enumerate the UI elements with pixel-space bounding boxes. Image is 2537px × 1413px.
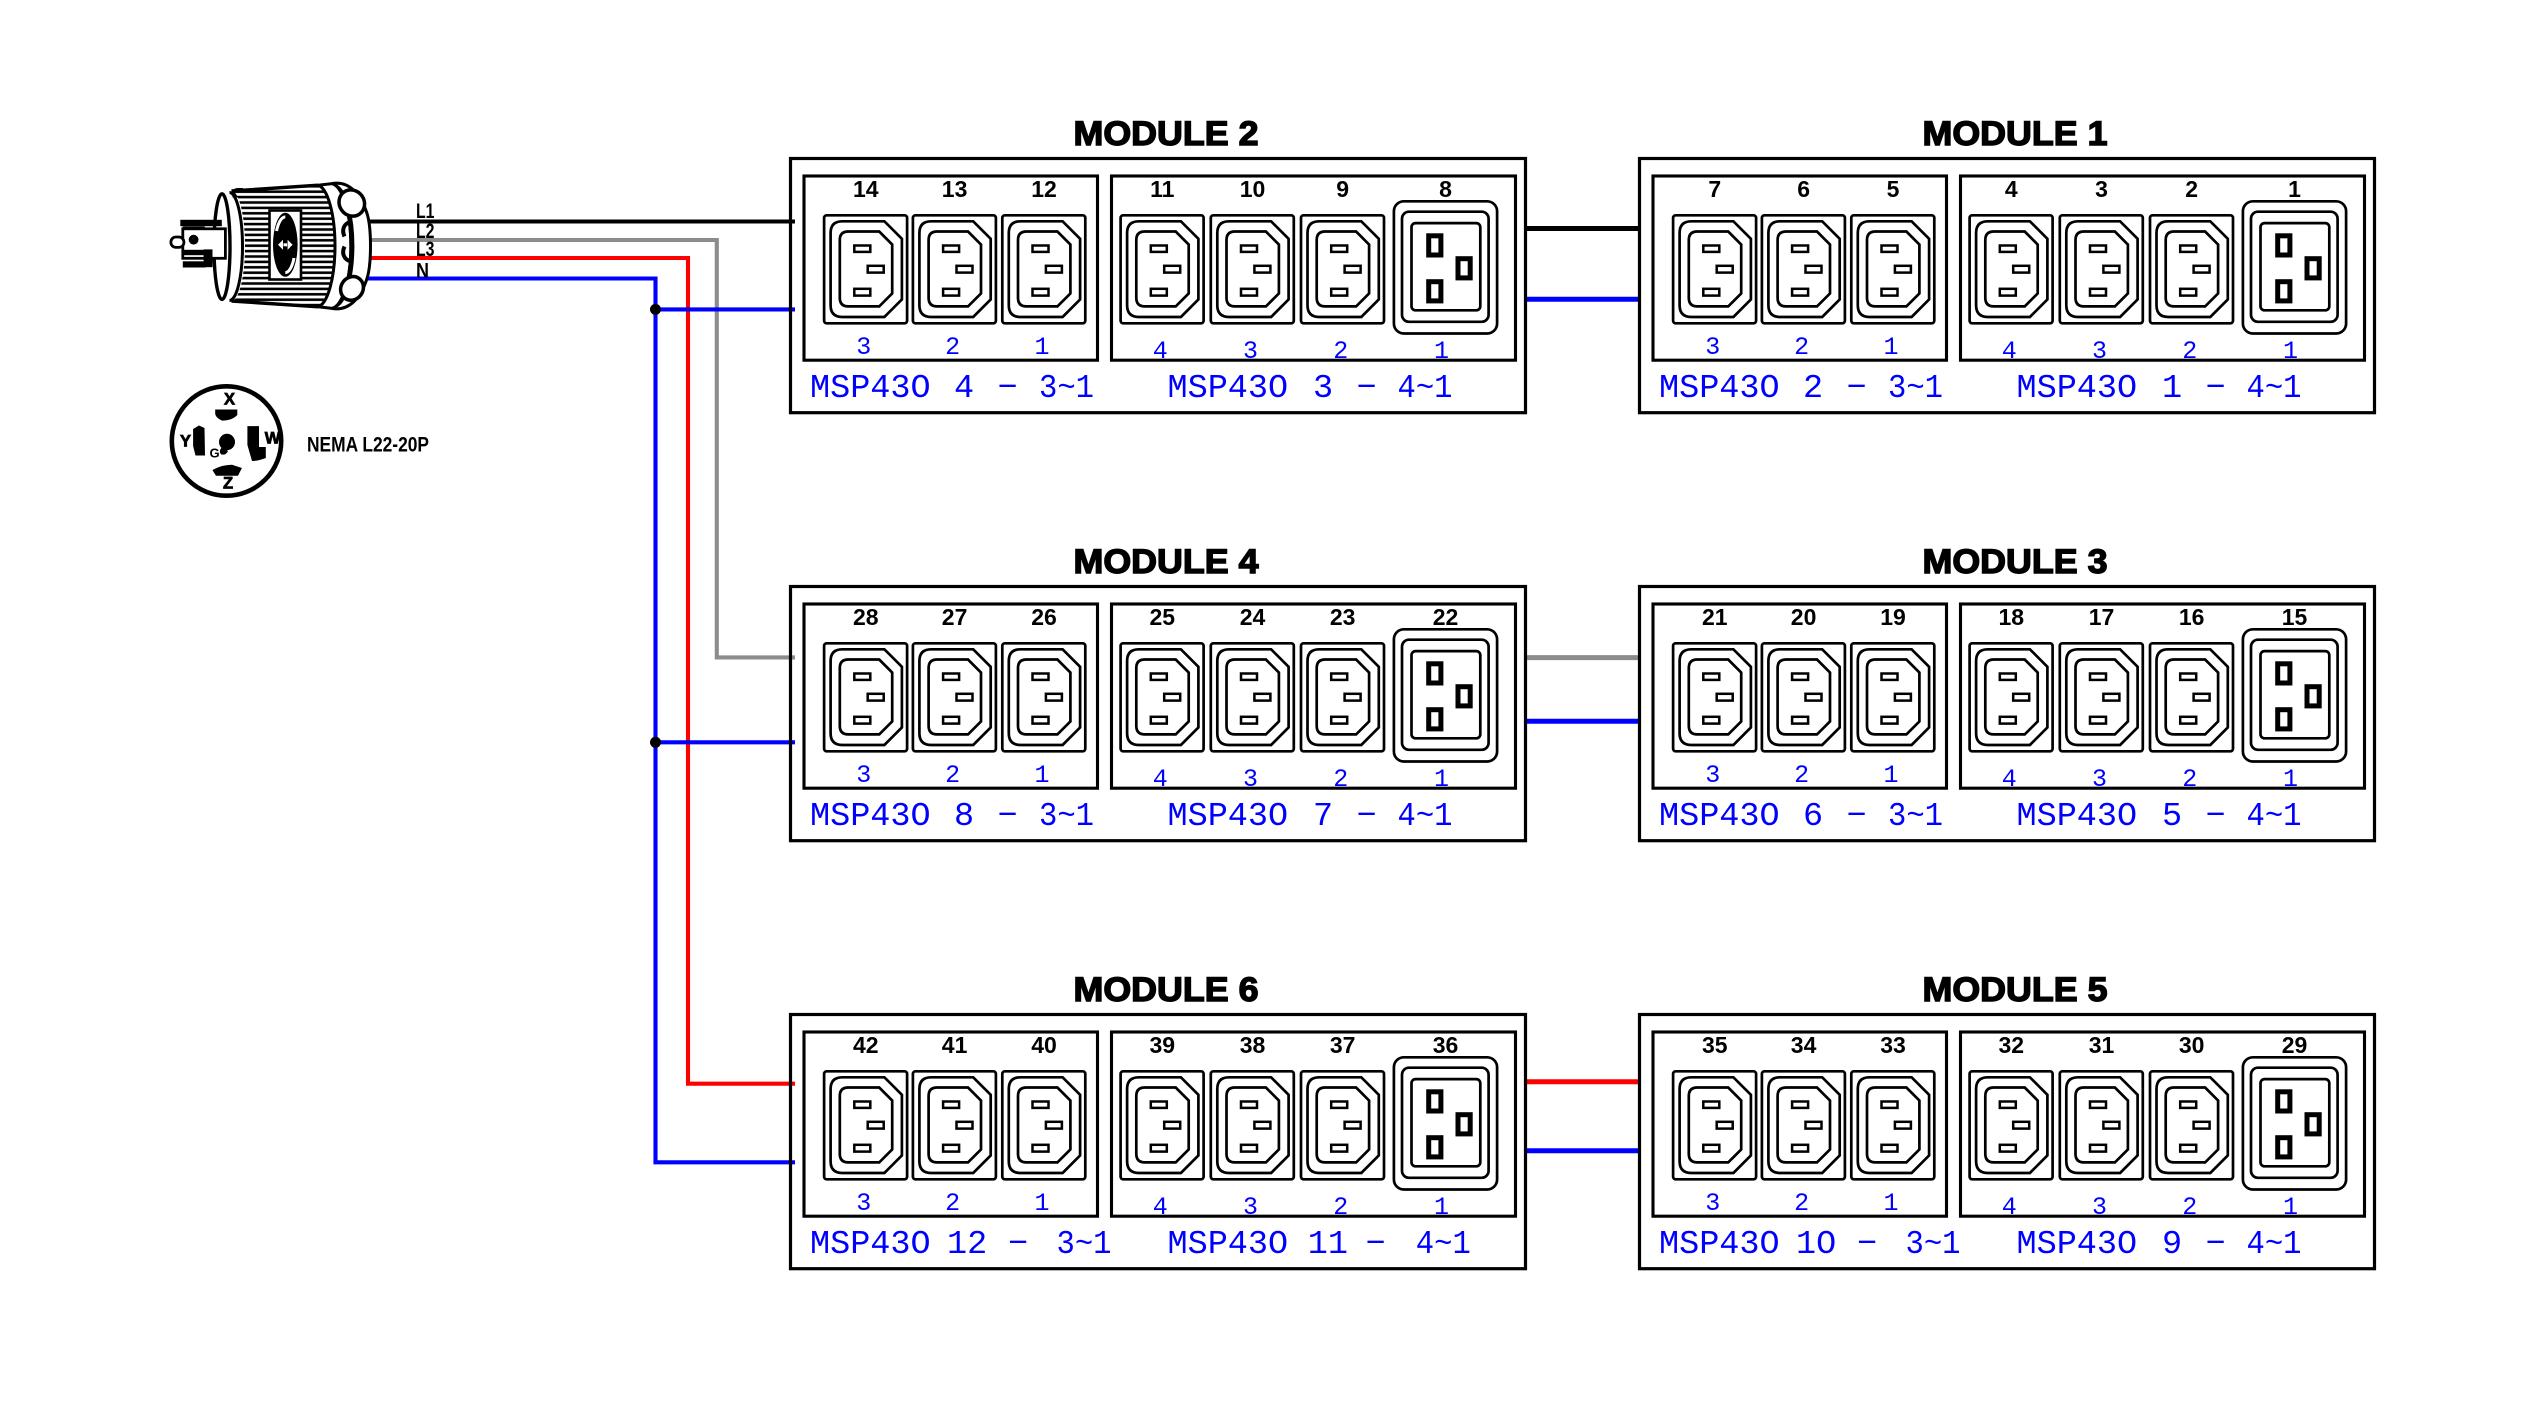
svg-text:1: 1	[2283, 765, 2298, 794]
svg-text:6: 6	[1797, 176, 1810, 202]
svg-text:2: 2	[1794, 333, 1809, 362]
svg-text:−: −	[1357, 798, 1377, 836]
svg-text:19: 19	[1880, 604, 1906, 630]
svg-text:3: 3	[856, 1189, 871, 1218]
svg-text:12: 12	[1031, 176, 1057, 202]
svg-text:1: 1	[1034, 761, 1049, 790]
svg-text:MODULE 4: MODULE 4	[1074, 543, 1259, 581]
svg-text:17: 17	[2089, 604, 2115, 630]
svg-text:−: −	[1847, 798, 1867, 836]
svg-text:MSP43O: MSP43O	[810, 1226, 931, 1264]
svg-text:MSP43O: MSP43O	[2017, 370, 2138, 408]
svg-text:2: 2	[1333, 337, 1348, 366]
svg-text:3~1: 3~1	[1888, 798, 1943, 836]
svg-text:2: 2	[2185, 176, 2198, 202]
svg-text:Y: Y	[180, 433, 191, 451]
svg-text:26: 26	[1031, 604, 1057, 630]
svg-text:3: 3	[2092, 1193, 2107, 1222]
svg-text:−: −	[998, 798, 1018, 836]
svg-text:9: 9	[2162, 1226, 2182, 1264]
svg-text:NEMA L22-20P: NEMA L22-20P	[307, 433, 429, 456]
svg-text:4: 4	[2005, 176, 2018, 202]
svg-text:30: 30	[2179, 1032, 2205, 1058]
svg-text:5: 5	[2162, 798, 2182, 836]
svg-text:23: 23	[1330, 604, 1356, 630]
svg-text:3: 3	[2092, 765, 2107, 794]
svg-text:1: 1	[1883, 761, 1898, 790]
svg-text:3: 3	[1313, 370, 1333, 408]
svg-text:15: 15	[2282, 604, 2308, 630]
svg-text:1: 1	[1883, 333, 1898, 362]
svg-text:3: 3	[1705, 1189, 1720, 1218]
svg-text:4~1: 4~1	[1416, 1226, 1471, 1264]
svg-text:20: 20	[1791, 604, 1817, 630]
svg-text:MODULE 5: MODULE 5	[1923, 971, 2108, 1009]
svg-text:MSP43O: MSP43O	[1659, 1226, 1780, 1264]
svg-text:4: 4	[954, 370, 974, 408]
svg-text:2: 2	[2182, 337, 2197, 366]
svg-text:MSP43O: MSP43O	[1168, 1226, 1289, 1264]
svg-text:7: 7	[1313, 798, 1333, 836]
svg-text:MODULE 2: MODULE 2	[1074, 115, 1259, 153]
svg-text:−: −	[1857, 1226, 1877, 1264]
svg-text:X: X	[224, 391, 235, 409]
svg-text:37: 37	[1330, 1032, 1356, 1058]
svg-text:1: 1	[1434, 765, 1449, 794]
svg-text:3~1: 3~1	[1888, 370, 1943, 408]
svg-text:MSP43O: MSP43O	[1168, 798, 1289, 836]
svg-text:4: 4	[2002, 1193, 2017, 1222]
svg-text:7: 7	[1708, 176, 1721, 202]
svg-text:MSP43O: MSP43O	[1168, 370, 1289, 408]
svg-text:18: 18	[1999, 604, 2025, 630]
svg-text:13: 13	[942, 176, 968, 202]
svg-text:2: 2	[1333, 1193, 1348, 1222]
svg-text:3~1: 3~1	[1906, 1226, 1961, 1264]
svg-text:4: 4	[1153, 765, 1168, 794]
svg-text:14: 14	[853, 176, 879, 202]
svg-text:−: −	[1847, 370, 1867, 408]
svg-text:31: 31	[2089, 1032, 2115, 1058]
svg-text:MSP43O: MSP43O	[810, 370, 931, 408]
svg-text:3~1: 3~1	[1039, 370, 1094, 408]
svg-text:1: 1	[1883, 1189, 1898, 1218]
svg-text:4~1: 4~1	[1398, 798, 1453, 836]
svg-text:4: 4	[1153, 337, 1168, 366]
svg-text:1: 1	[1434, 1193, 1449, 1222]
svg-text:5: 5	[1887, 176, 1900, 202]
svg-text:3: 3	[2092, 337, 2107, 366]
svg-text:4: 4	[2002, 337, 2017, 366]
svg-text:24: 24	[1240, 604, 1266, 630]
svg-text:2: 2	[1794, 761, 1809, 790]
svg-text:2: 2	[2182, 765, 2197, 794]
svg-text:4~1: 4~1	[2247, 798, 2302, 836]
svg-text:1O: 1O	[1796, 1226, 1836, 1264]
svg-text:34: 34	[1791, 1032, 1817, 1058]
svg-text:Z: Z	[223, 475, 233, 493]
svg-text:1: 1	[1034, 333, 1049, 362]
svg-text:4~1: 4~1	[2247, 1226, 2302, 1264]
svg-text:−: −	[1366, 1226, 1386, 1264]
svg-text:4~1: 4~1	[2247, 370, 2302, 408]
svg-text:W: W	[265, 430, 281, 448]
svg-text:38: 38	[1240, 1032, 1266, 1058]
svg-text:2: 2	[945, 761, 960, 790]
svg-text:2: 2	[945, 1189, 960, 1218]
svg-text:3: 3	[1705, 761, 1720, 790]
svg-text:12: 12	[947, 1226, 987, 1264]
svg-text:11: 11	[1308, 1226, 1348, 1264]
svg-text:41: 41	[942, 1032, 968, 1058]
svg-text:10: 10	[1240, 176, 1266, 202]
svg-text:27: 27	[942, 604, 968, 630]
svg-text:1: 1	[2283, 337, 2298, 366]
svg-text:−: −	[2206, 798, 2226, 836]
svg-text:33: 33	[1880, 1032, 1906, 1058]
svg-text:MSP43O: MSP43O	[1659, 370, 1780, 408]
svg-text:16: 16	[2179, 604, 2205, 630]
svg-text:MODULE 3: MODULE 3	[1923, 543, 2108, 581]
svg-text:MSP43O: MSP43O	[2017, 1226, 2138, 1264]
svg-text:MODULE 1: MODULE 1	[1923, 115, 2108, 153]
svg-text:1: 1	[2162, 370, 2182, 408]
svg-text:1: 1	[1034, 1189, 1049, 1218]
svg-text:2: 2	[945, 333, 960, 362]
svg-text:L3: L3	[416, 238, 435, 261]
svg-text:3: 3	[856, 333, 871, 362]
svg-text:−: −	[2206, 1226, 2226, 1264]
svg-text:3: 3	[1243, 1193, 1258, 1222]
svg-text:1: 1	[2288, 176, 2301, 202]
svg-text:2: 2	[1333, 765, 1348, 794]
svg-text:2: 2	[2182, 1193, 2197, 1222]
svg-text:28: 28	[853, 604, 879, 630]
svg-text:32: 32	[1999, 1032, 2025, 1058]
svg-text:−: −	[2206, 370, 2226, 408]
svg-text:−: −	[998, 370, 1018, 408]
svg-text:1: 1	[1434, 337, 1449, 366]
svg-text:42: 42	[853, 1032, 879, 1058]
svg-text:21: 21	[1702, 604, 1728, 630]
svg-text:−: −	[1008, 1226, 1028, 1264]
svg-text:22: 22	[1433, 604, 1459, 630]
svg-text:36: 36	[1433, 1032, 1459, 1058]
svg-text:3: 3	[1243, 337, 1258, 366]
svg-text:4: 4	[2002, 765, 2017, 794]
svg-text:3~1: 3~1	[1039, 798, 1094, 836]
svg-text:4: 4	[1153, 1193, 1168, 1222]
svg-text:3: 3	[856, 761, 871, 790]
svg-text:MSP43O: MSP43O	[2017, 798, 2138, 836]
svg-text:9: 9	[1336, 176, 1349, 202]
svg-text:MODULE 6: MODULE 6	[1074, 971, 1259, 1009]
svg-text:40: 40	[1031, 1032, 1057, 1058]
svg-text:MSP43O: MSP43O	[810, 798, 931, 836]
svg-text:MSP43O: MSP43O	[1659, 798, 1780, 836]
svg-text:6: 6	[1803, 798, 1823, 836]
svg-text:3: 3	[1705, 333, 1720, 362]
svg-text:11: 11	[1150, 176, 1175, 202]
svg-text:8: 8	[1439, 176, 1452, 202]
svg-text:4~1: 4~1	[1398, 370, 1453, 408]
svg-text:25: 25	[1150, 604, 1176, 630]
svg-text:3: 3	[1243, 765, 1258, 794]
svg-text:2: 2	[1794, 1189, 1809, 1218]
svg-text:8: 8	[954, 798, 974, 836]
svg-text:2: 2	[1803, 370, 1823, 408]
svg-text:−: −	[1357, 370, 1377, 408]
svg-text:1: 1	[2283, 1193, 2298, 1222]
svg-text:G: G	[209, 446, 219, 461]
svg-text:3: 3	[2095, 176, 2108, 202]
svg-text:39: 39	[1150, 1032, 1176, 1058]
svg-text:29: 29	[2282, 1032, 2308, 1058]
svg-text:35: 35	[1702, 1032, 1728, 1058]
svg-text:3~1: 3~1	[1057, 1226, 1112, 1264]
svg-text:N: N	[416, 259, 429, 282]
